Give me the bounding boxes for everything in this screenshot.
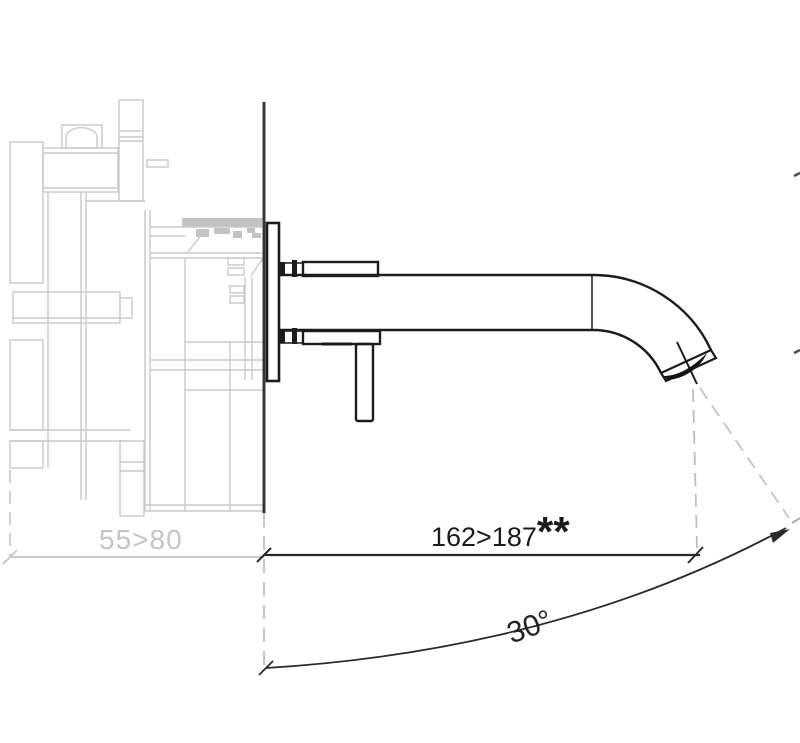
ghost-rect <box>119 100 143 201</box>
ghost-rect <box>230 286 244 293</box>
escutcheon-plate <box>267 223 279 381</box>
ghost-rect <box>228 258 244 265</box>
spout-connector-bottom-detail <box>280 329 285 343</box>
swivel-arc-arrowhead <box>770 529 790 543</box>
ghost-rect <box>228 268 244 275</box>
technical-drawing-canvas: 55>80 162>187** 30° <box>0 0 800 743</box>
spout-curve-outer <box>593 275 711 350</box>
dim-projection-label: 162>187** <box>431 508 570 555</box>
edge-tick-lower <box>794 350 800 353</box>
ghost-cap-fill <box>182 218 262 227</box>
edge-tick-upper <box>794 173 800 176</box>
ghost-rect <box>62 125 102 148</box>
ghost-rect <box>230 296 244 303</box>
handle-lever <box>356 344 373 421</box>
dim-angle-label: 30° <box>503 604 557 651</box>
ghost-rect <box>10 142 43 283</box>
ghost-rect <box>120 441 144 516</box>
dim-projection-note: ** <box>537 508 570 555</box>
ghost-rect <box>120 298 132 318</box>
faucet-trim <box>267 223 716 421</box>
swivel-arc-end-tick <box>792 518 800 523</box>
ghost-rect <box>147 160 168 167</box>
ghost-line <box>251 258 263 276</box>
dimensions: 55>80 162>187** 30° <box>3 173 800 675</box>
faucet-installation-diagram: 55>80 162>187** 30° <box>0 0 800 743</box>
ghost-line <box>188 234 202 252</box>
spout-connector-bottom-detail <box>292 328 297 344</box>
outlet-extension-diagonal-dashed <box>700 388 789 518</box>
ghost-cartridge-details <box>196 228 261 238</box>
outlet-extension-vertical-dashed <box>693 389 697 548</box>
ghost-rect <box>10 340 43 430</box>
ghost-arch <box>66 128 97 148</box>
ghost-rect <box>10 441 43 468</box>
spout-end-cross-mark <box>677 342 697 384</box>
concealed-valve-ghost <box>10 100 263 516</box>
spout-curve-inner <box>593 330 661 373</box>
dim-projection-value: 162>187 <box>431 522 537 552</box>
handle-sleeve <box>303 331 380 344</box>
ghost-rect <box>43 148 118 192</box>
aerator <box>664 353 707 380</box>
dim-depth-label: 55>80 <box>99 524 183 555</box>
